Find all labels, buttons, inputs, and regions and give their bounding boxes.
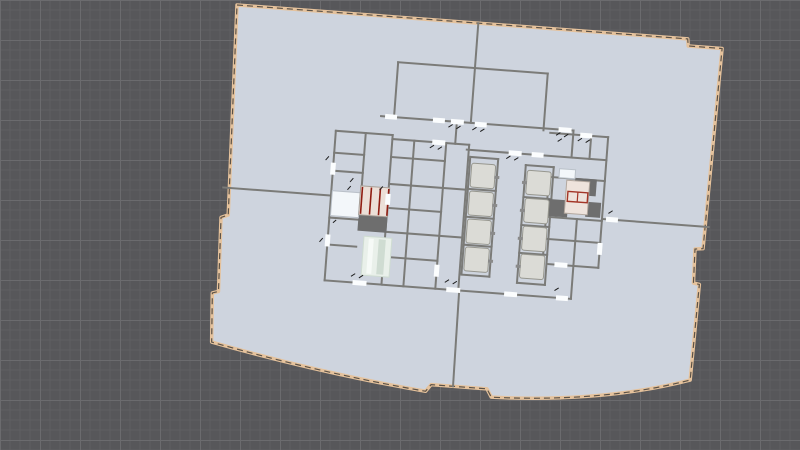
elevator-sill — [520, 209, 525, 212]
elevator-cab[interactable] — [466, 219, 492, 245]
door-opening[interactable] — [385, 194, 391, 205]
door-opening[interactable] — [580, 133, 592, 139]
elevator-cab[interactable] — [464, 247, 490, 273]
elevator-sill — [494, 176, 499, 179]
plan-canvas[interactable] — [0, 0, 800, 450]
door-opening[interactable] — [556, 295, 568, 301]
floor-plan-layer[interactable] — [206, 5, 723, 413]
door-opening[interactable] — [475, 122, 487, 128]
door-opening[interactable] — [508, 150, 521, 156]
white-room[interactable] — [559, 169, 576, 179]
elevator-sill — [490, 232, 495, 235]
door-opening[interactable] — [432, 140, 445, 146]
door-opening[interactable] — [597, 243, 603, 255]
cad-viewport[interactable] — [0, 0, 800, 450]
door-opening[interactable] — [554, 262, 567, 268]
elevator-sill — [522, 181, 527, 184]
door-opening[interactable] — [385, 114, 397, 120]
door-opening[interactable] — [558, 127, 571, 133]
door-opening[interactable] — [451, 119, 464, 125]
stair-room[interactable] — [359, 186, 390, 217]
elevator-sill — [518, 237, 523, 240]
door-opening[interactable] — [434, 265, 440, 277]
elevator-cab[interactable] — [468, 191, 494, 217]
door-opening[interactable] — [606, 217, 618, 223]
elevator-cab[interactable] — [519, 254, 545, 280]
elevator-cab[interactable] — [521, 226, 547, 252]
shaft-poche-block[interactable] — [357, 215, 387, 233]
white-room[interactable] — [330, 191, 360, 218]
elevator-sill — [492, 204, 497, 207]
door-opening[interactable] — [330, 162, 336, 174]
door-opening[interactable] — [433, 118, 445, 124]
elevator-cab[interactable] — [524, 198, 550, 224]
door-opening[interactable] — [352, 280, 366, 286]
elevator-sill — [516, 265, 521, 268]
door-opening[interactable] — [446, 287, 460, 293]
red-outlined-room-divider — [577, 192, 578, 202]
elevator-cab[interactable] — [470, 163, 496, 189]
elevator-sill — [488, 260, 493, 263]
door-opening[interactable] — [504, 291, 517, 297]
door-opening[interactable] — [531, 152, 543, 158]
door-opening[interactable] — [325, 234, 331, 246]
elevator-cab[interactable] — [526, 170, 552, 196]
